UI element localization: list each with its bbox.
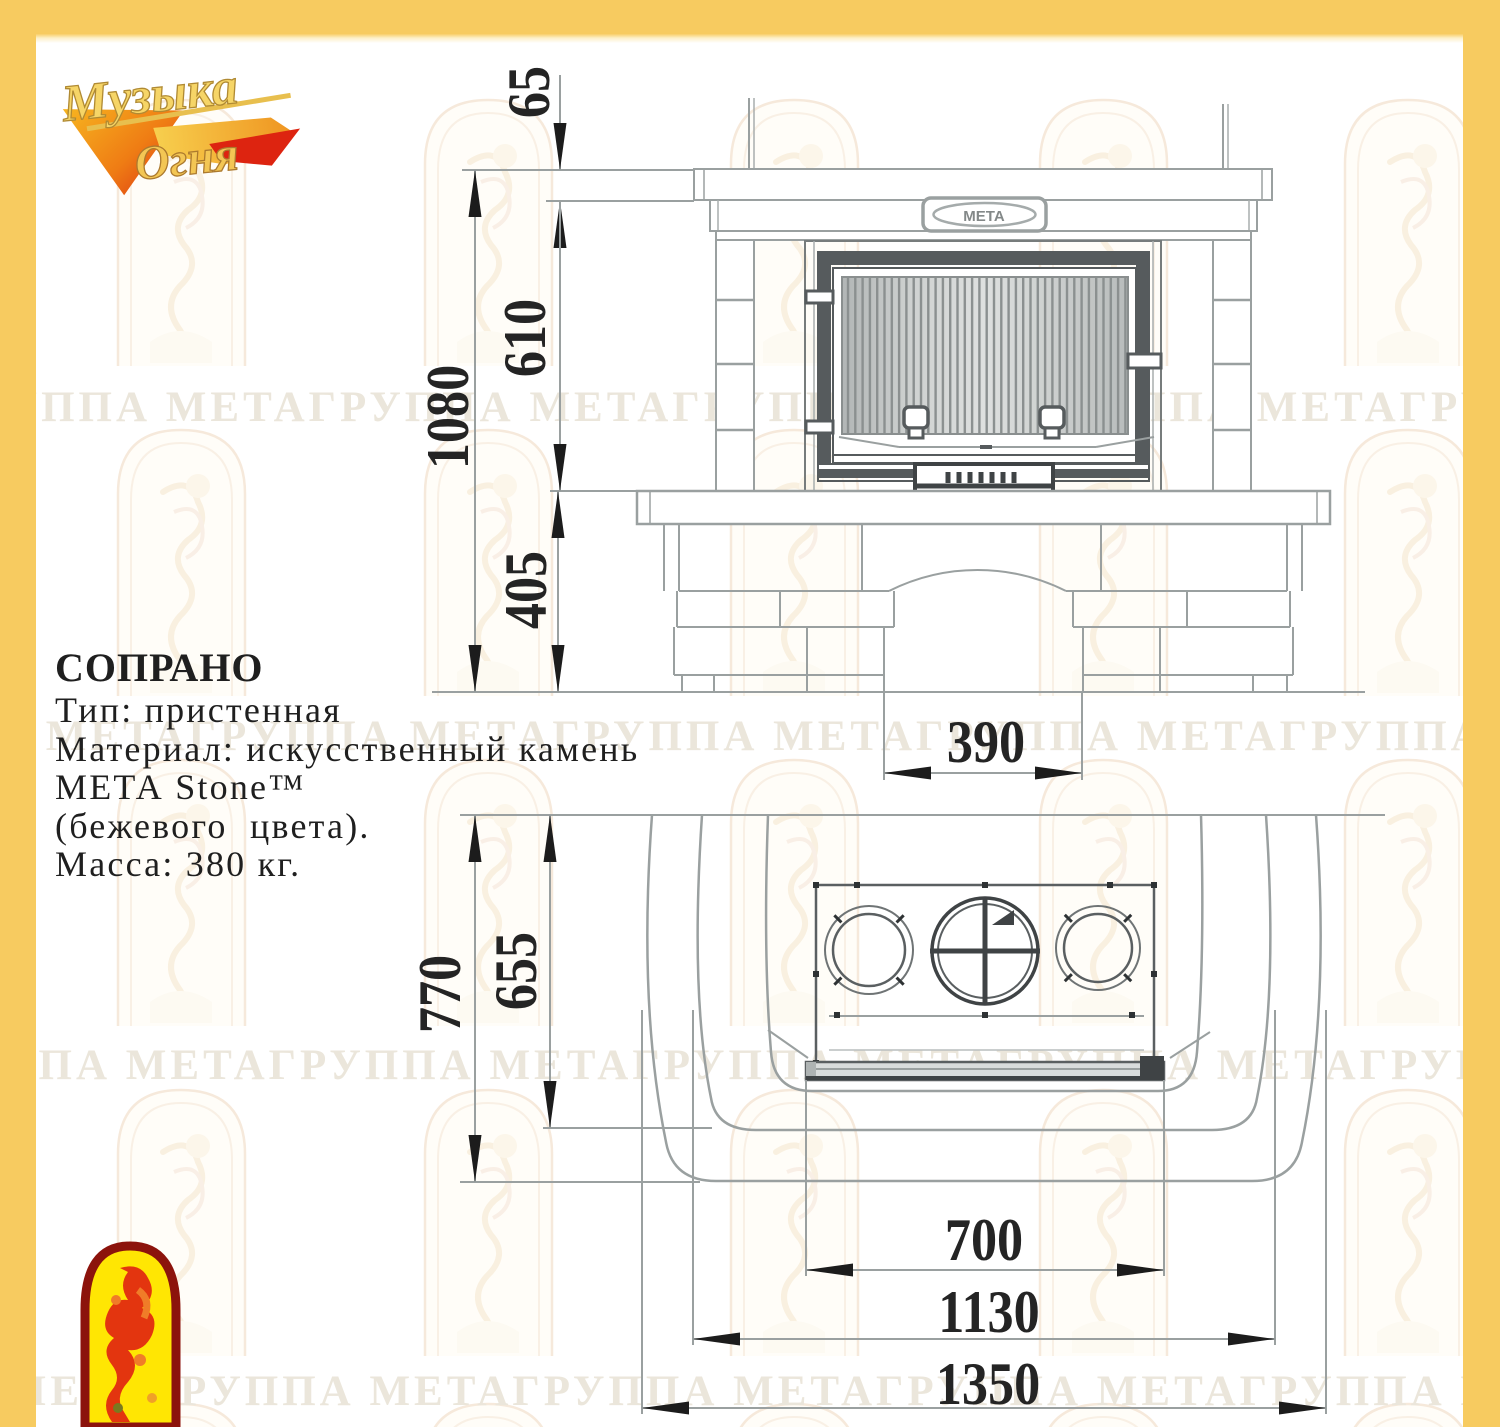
- svg-text:655: 655: [484, 932, 550, 1010]
- svg-text:610: 610: [493, 299, 559, 377]
- svg-text:1350: 1350: [936, 1352, 1040, 1418]
- svg-text:МЕТА: МЕТА: [963, 208, 1005, 225]
- svg-text:Музыка: Музыка: [58, 58, 240, 133]
- svg-text:65: 65: [497, 66, 563, 118]
- svg-text:390: 390: [947, 710, 1025, 776]
- svg-text:405: 405: [494, 551, 560, 629]
- svg-text:770: 770: [408, 955, 474, 1033]
- svg-text:1130: 1130: [938, 1280, 1039, 1346]
- svg-text:Огня: Огня: [132, 127, 241, 191]
- svg-text:1080: 1080: [416, 365, 482, 469]
- svg-text:700: 700: [945, 1208, 1023, 1274]
